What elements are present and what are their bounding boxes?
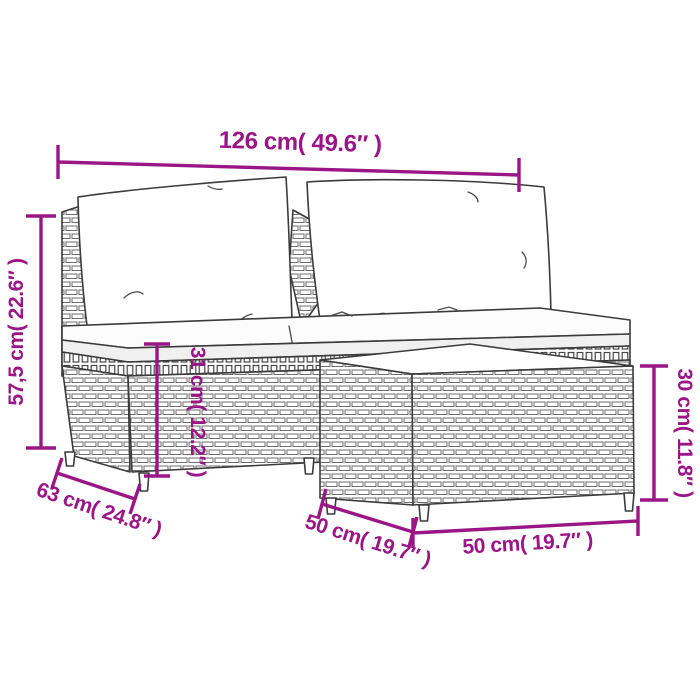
dim-label-table-width: 50 cm( 19.7″ ) (462, 528, 594, 558)
dim-table-width: 50 cm( 19.7″ ) (413, 506, 638, 559)
table-leg (624, 493, 634, 511)
table-leg (419, 505, 429, 521)
sofa-back-pillow-left (78, 177, 292, 334)
dim-label-seat-height: 31 cm( 12.2″ ) (186, 347, 209, 478)
dim-overall-height: 57,5 cm( 22.6″ ) (5, 216, 56, 448)
dim-line (26, 216, 56, 448)
table-left-face (320, 360, 413, 505)
table-front-face (412, 366, 634, 505)
sofa-leg (304, 458, 314, 474)
sofa-leg (65, 452, 75, 466)
dim-table-height: 30 cm( 11.8″ ) (640, 366, 696, 500)
dim-label-table-height: 30 cm( 11.8″ ) (673, 368, 696, 497)
dim-label-overall-height: 57,5 cm( 22.6″ ) (5, 258, 28, 405)
sofa-back-pillow-right (307, 180, 551, 327)
furniture-line-art (62, 177, 634, 521)
product-dimension-diagram: 126 cm( 49.6″ ) 57,5 cm( 22.6″ ) 31 cm( … (0, 0, 700, 700)
dim-label-overall-width: 126 cm( 49.6″ ) (218, 127, 382, 159)
coffee-table (320, 344, 634, 521)
dim-line (640, 366, 668, 500)
diagram-svg: 126 cm( 49.6″ ) 57,5 cm( 22.6″ ) 31 cm( … (0, 0, 700, 700)
